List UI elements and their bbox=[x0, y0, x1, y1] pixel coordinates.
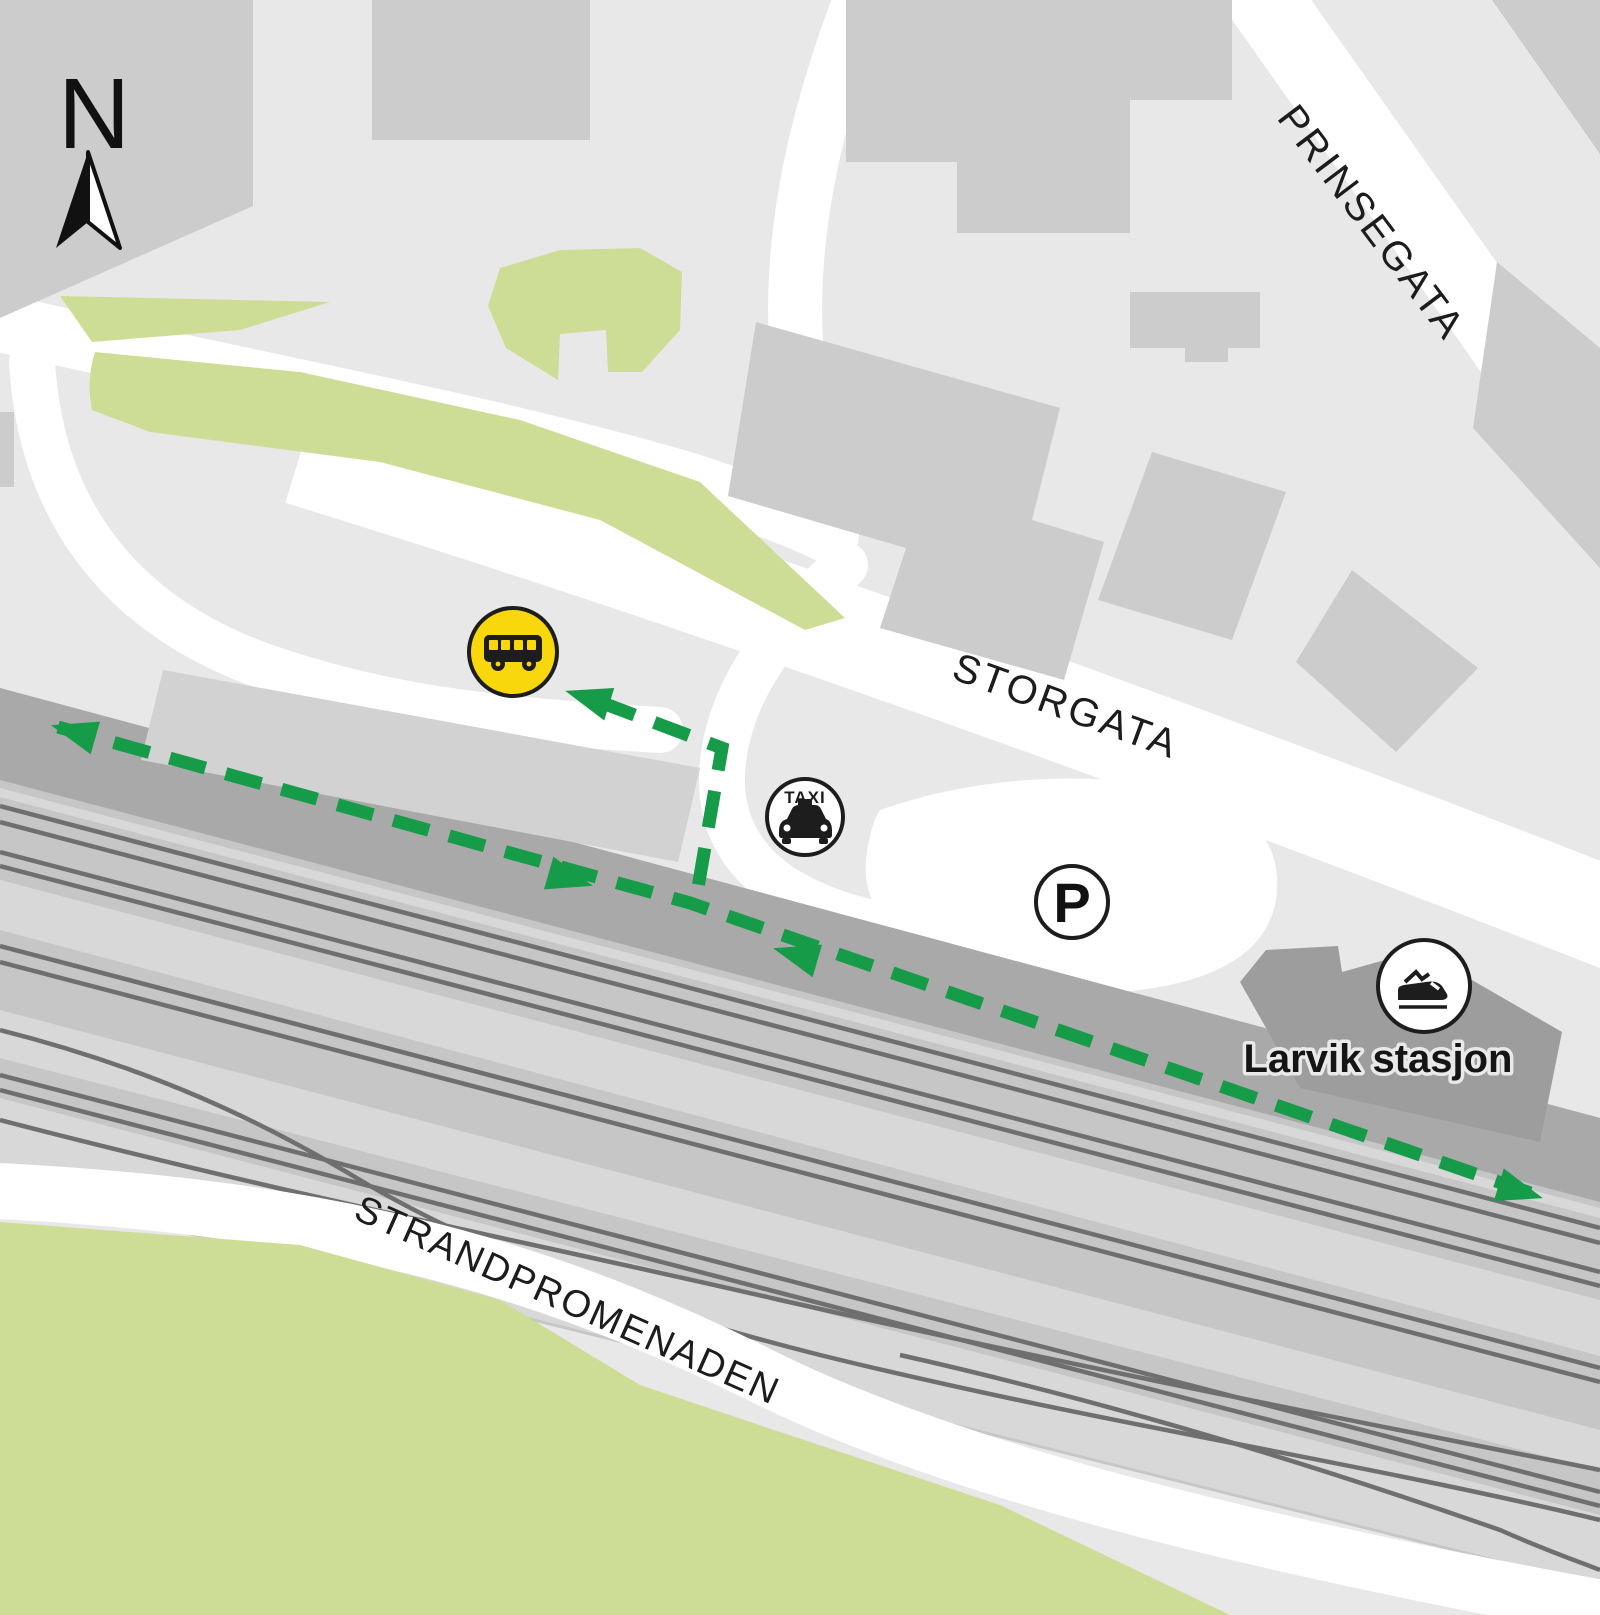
parking-label: P bbox=[1053, 871, 1090, 934]
compass-label: N bbox=[58, 58, 130, 170]
building bbox=[372, 0, 590, 140]
building bbox=[1185, 318, 1228, 362]
train-station-icon bbox=[1378, 940, 1470, 1032]
map-wrapper: TAXI P PRINSEGATA STORGATA STRANDPROMENA… bbox=[0, 0, 1600, 1615]
station-label: Larvik stasjon bbox=[1243, 1037, 1512, 1081]
taxi-icon: TAXI bbox=[767, 779, 843, 855]
parking-icon: P bbox=[1036, 866, 1108, 938]
building bbox=[0, 412, 14, 487]
station-area-map: TAXI P PRINSEGATA STORGATA STRANDPROMENA… bbox=[0, 0, 1600, 1615]
bus-stop-icon bbox=[469, 608, 557, 696]
